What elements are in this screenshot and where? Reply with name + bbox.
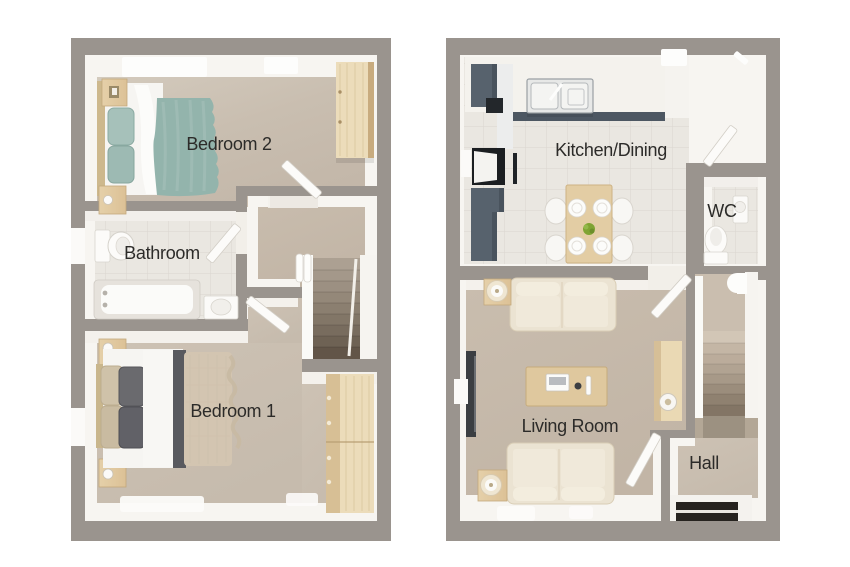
svg-text:Kitchen/Dining: Kitchen/Dining [555, 140, 667, 160]
svg-text:Bedroom 2: Bedroom 2 [186, 134, 272, 154]
svg-text:WC: WC [707, 201, 737, 221]
svg-text:Hall: Hall [689, 453, 719, 473]
svg-text:Living Room: Living Room [522, 416, 619, 436]
svg-text:Bathroom: Bathroom [124, 243, 200, 263]
svg-text:Bedroom 1: Bedroom 1 [190, 401, 276, 421]
